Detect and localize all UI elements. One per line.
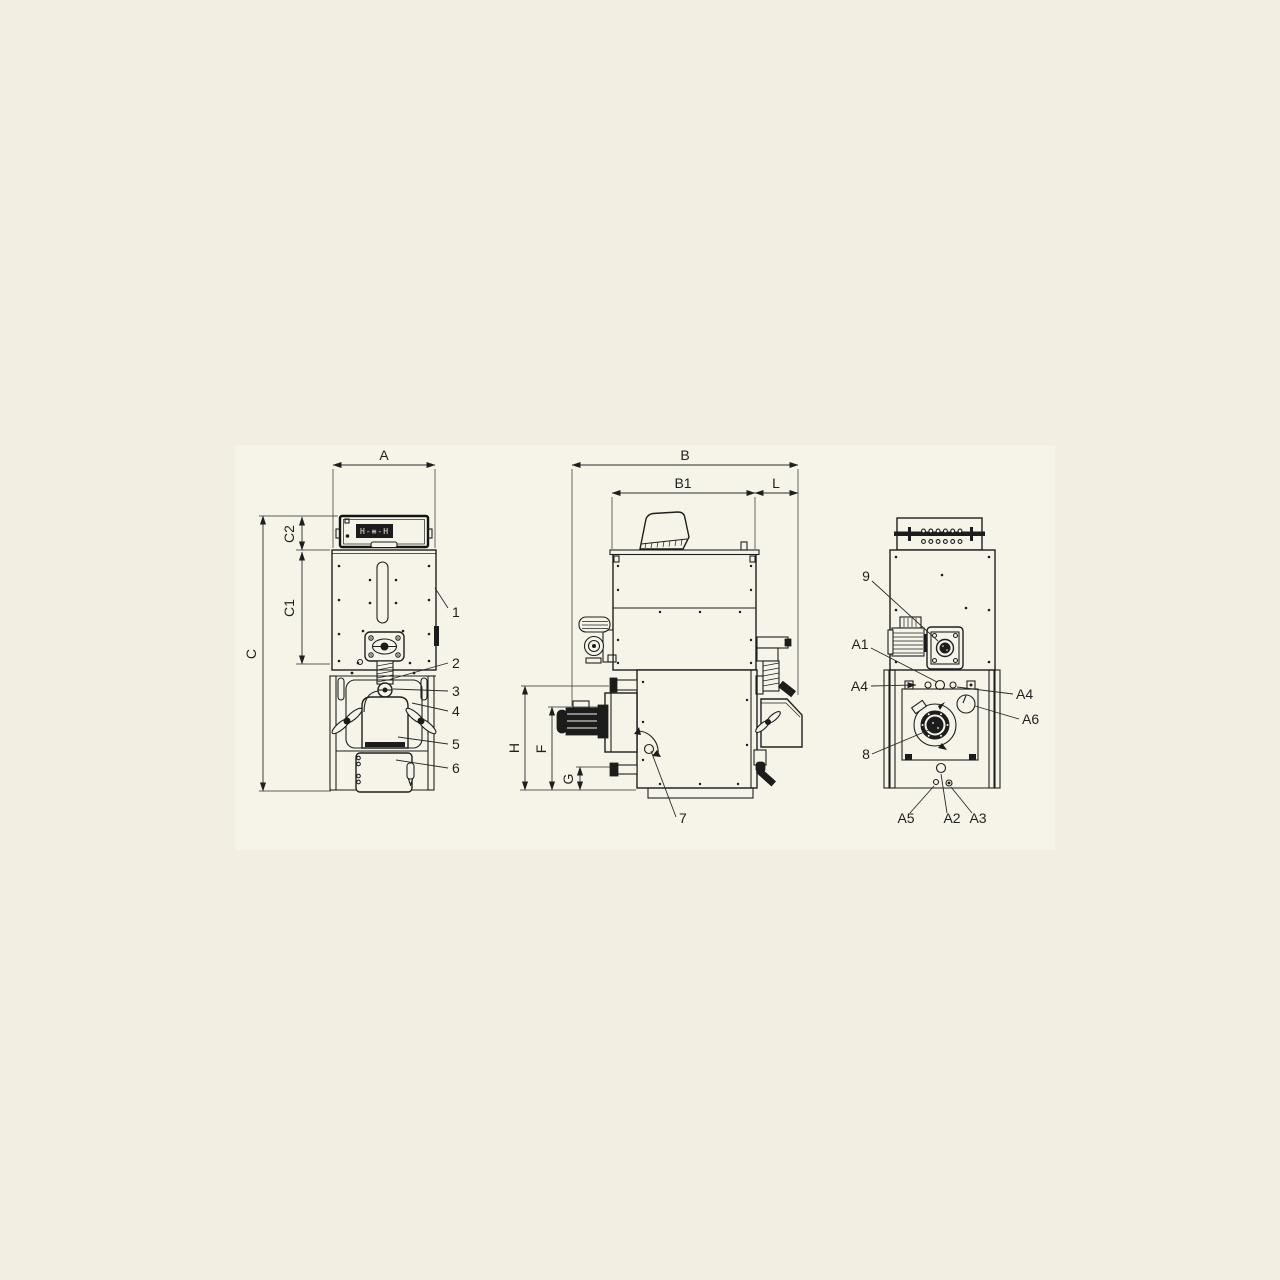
callout-3: 3	[452, 683, 460, 699]
dim-label-c2: C2	[281, 525, 297, 543]
dim-label-h: H	[506, 743, 522, 753]
chute-bracket	[757, 637, 788, 648]
callout-a4-right: A4	[1016, 686, 1033, 702]
callout-6: 6	[452, 760, 460, 776]
side-bracket	[434, 626, 439, 646]
dim-label-c: C	[243, 649, 259, 659]
dim-label-a: A	[379, 447, 389, 463]
callout-4: 4	[452, 703, 460, 719]
rear-top-box	[894, 518, 985, 550]
callout-1: 1	[452, 604, 460, 620]
dim-label-g: G	[560, 774, 576, 785]
technical-drawing-svg: A C C2 C1 H-≡-H	[0, 0, 1280, 1280]
callout-a2: A2	[943, 810, 960, 826]
panel-button	[346, 534, 350, 538]
feed-flange	[365, 632, 404, 661]
ash-door	[356, 753, 414, 792]
boiler-dimension-drawing: A C C2 C1 H-≡-H	[0, 0, 1280, 1280]
motor-body	[892, 628, 924, 656]
dim-label-c1: C1	[281, 599, 297, 617]
chute-tube	[763, 661, 779, 691]
dim-label-l: L	[772, 475, 780, 491]
callout-a5: A5	[897, 810, 914, 826]
callout-a3: A3	[969, 810, 986, 826]
panel-display-text: H-≡-H	[360, 527, 389, 536]
feed-tube-coupling	[378, 683, 392, 697]
dim-label-b: B	[680, 447, 689, 463]
callout-a4-left: A4	[851, 678, 868, 694]
callout-2: 2	[452, 655, 460, 671]
dim-label-b1: B1	[674, 475, 691, 491]
fan-motor	[557, 708, 598, 735]
boiler-body-side	[637, 670, 757, 798]
callout-7: 7	[679, 810, 687, 826]
callout-8: 8	[862, 746, 870, 762]
callout-5: 5	[452, 736, 460, 752]
callout-a6: A6	[1022, 711, 1039, 727]
motor-flange	[598, 705, 608, 738]
water-connection-bottom	[610, 763, 637, 776]
control-panel: H-≡-H	[336, 516, 432, 548]
hopper	[610, 542, 759, 670]
callout-9: 9	[862, 568, 870, 584]
water-connection-top	[610, 678, 637, 692]
hopper-lid	[640, 512, 689, 549]
auger-shaft	[940, 643, 951, 654]
panel-latch	[371, 542, 397, 548]
callout-a1: A1	[851, 636, 868, 652]
dim-label-f: F	[533, 745, 549, 754]
